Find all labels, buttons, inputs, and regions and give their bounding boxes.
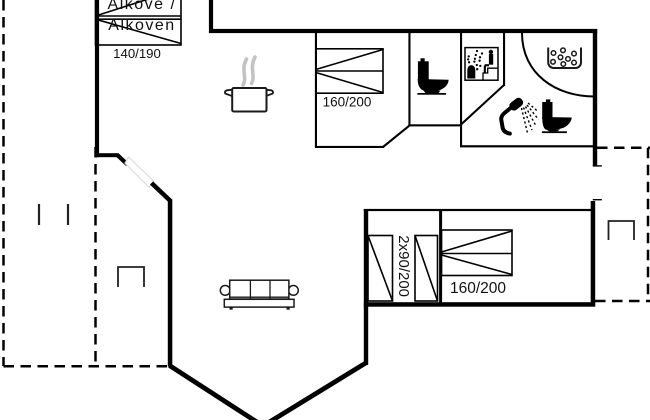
svg-text:Alkoven: Alkoven: [108, 17, 175, 34]
svg-text:160/200: 160/200: [323, 95, 372, 110]
svg-text:Alkove /: Alkove /: [108, 0, 177, 13]
svg-text:2x90/200: 2x90/200: [395, 235, 412, 297]
svg-text:160/200: 160/200: [450, 280, 506, 297]
svg-text:140/190: 140/190: [113, 46, 161, 61]
